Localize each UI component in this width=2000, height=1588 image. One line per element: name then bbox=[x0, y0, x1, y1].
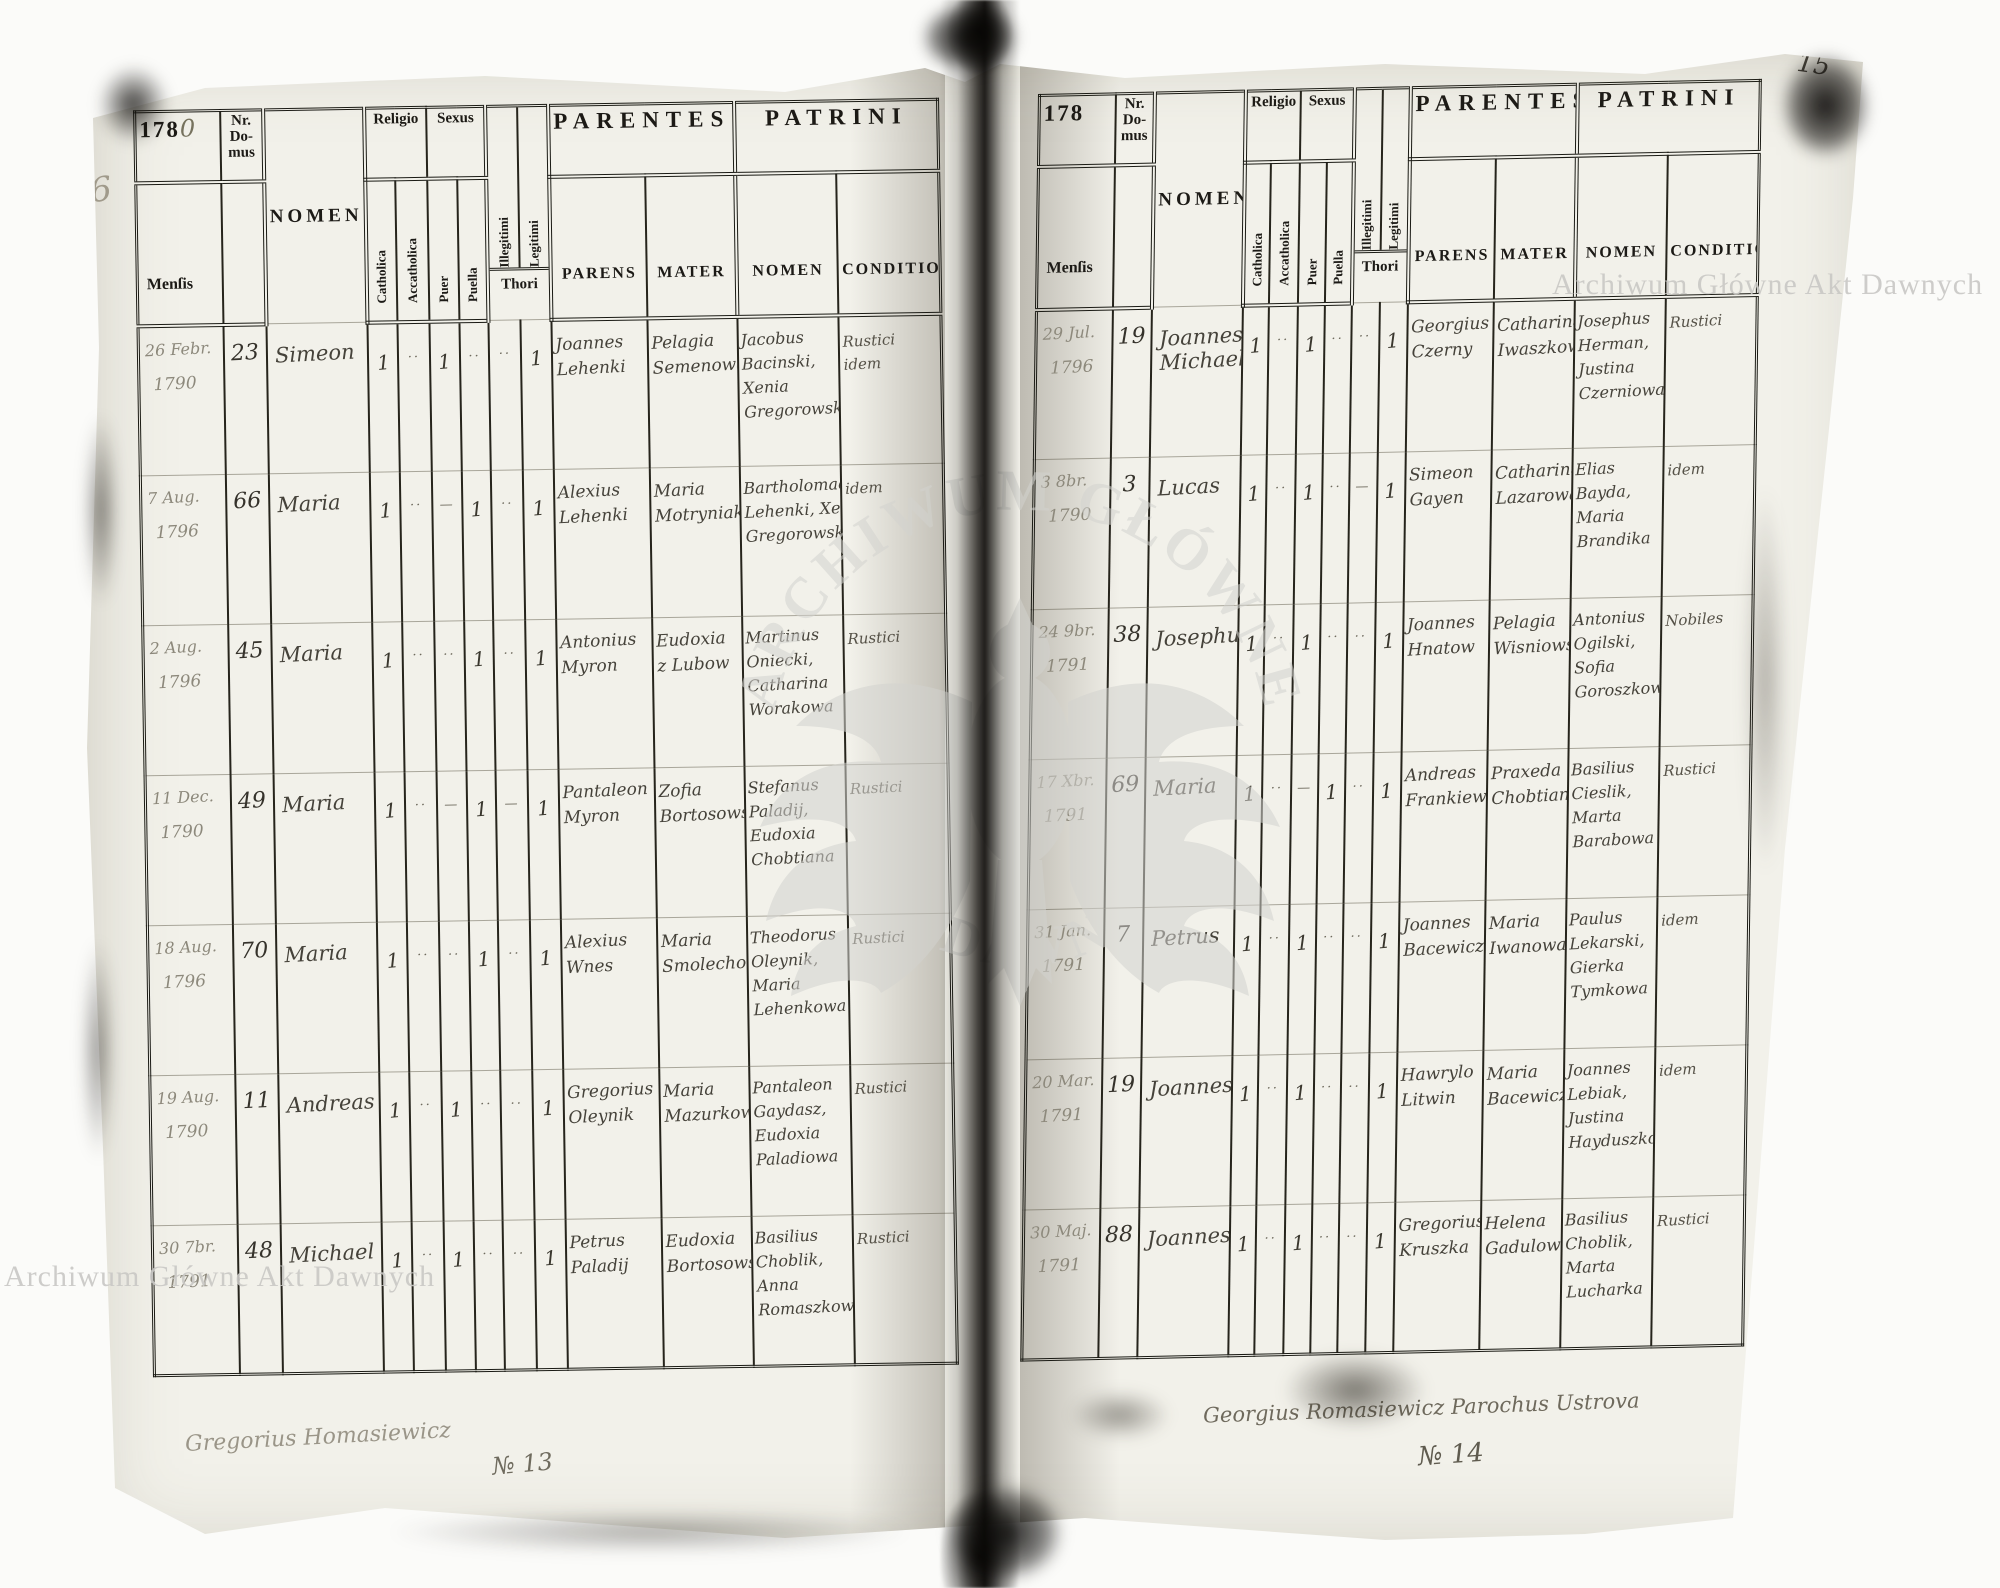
cell-godparents: Josephus Herman, Justina Czerniowa bbox=[1573, 296, 1666, 448]
illegitimi-label: Illegitimi bbox=[1359, 100, 1377, 250]
puer-mark: 1 bbox=[1291, 1230, 1305, 1255]
puer-mark: 1 bbox=[452, 1247, 467, 1272]
entry-child-name: Maria bbox=[279, 640, 343, 667]
legitimi-mark: 1 bbox=[1382, 628, 1396, 653]
entry-month-day: 18 Aug. bbox=[154, 936, 218, 958]
entry-month-day: 30 7br. bbox=[159, 1236, 217, 1258]
cell-father: Joannes Bacewicz bbox=[1397, 900, 1486, 1052]
entry-child-name: Andreas bbox=[286, 1089, 375, 1117]
entry-father: Gregorius Kruszka bbox=[1398, 1209, 1481, 1263]
illegitimi-mark: ·· bbox=[499, 347, 511, 362]
cell-godparents: Antonius Ogilski, Sofia Goroszkowa bbox=[1569, 597, 1662, 749]
cell-puella-mark: 1 bbox=[469, 920, 501, 1070]
cell-legitimi-mark: 1 bbox=[522, 469, 556, 619]
register-row: 29 Jul. 1796 19 Joannes Michael 1 ·· 1 ·… bbox=[1034, 294, 1757, 459]
cell-mensis: 7 Aug. 1796 bbox=[140, 475, 227, 626]
entry-father: Alexius Wnes bbox=[564, 927, 655, 981]
catholica-mark: 1 bbox=[376, 350, 391, 375]
worn-corner-top-left bbox=[86, 52, 181, 157]
cell-mother: Maria Iwanowa bbox=[1484, 899, 1567, 1051]
cell-nr-domus-cont bbox=[1113, 164, 1154, 308]
illegitimi-half: Illegitimi bbox=[1354, 90, 1381, 251]
puella-mark: 1 bbox=[474, 797, 489, 822]
puer-mark: — bbox=[444, 797, 459, 812]
cell-accatholica-mark: ·· bbox=[404, 771, 438, 921]
accatholica-label: Accatholica bbox=[403, 187, 421, 303]
cell-accatholica-header: Accatholica bbox=[395, 179, 429, 322]
cell-catholica-header: Catholica bbox=[365, 179, 397, 322]
cell-catholica-mark: 1 bbox=[379, 1072, 411, 1222]
accatholica-mark: ·· bbox=[408, 349, 420, 364]
thori-columns: Illegitimi Legitimi bbox=[487, 107, 548, 268]
cell-father: Gregorius Oleynik bbox=[563, 1068, 662, 1219]
cell-legitimi-mark: 1 bbox=[525, 619, 559, 769]
cell-child-name: Maria bbox=[271, 622, 375, 774]
accatholica-mark: ·· bbox=[1267, 1081, 1279, 1096]
entry-month-day: 26 Febr. bbox=[144, 338, 211, 360]
cell-father: Hawrylo Litwin bbox=[1395, 1050, 1484, 1202]
cell-mother: Praxeda Chobtiana bbox=[1486, 749, 1569, 901]
cell-legitimi-mark: 1 bbox=[1375, 452, 1405, 603]
cell-house-number: 45 bbox=[228, 624, 274, 775]
cell-accatholica-mark: ·· bbox=[1255, 1205, 1286, 1356]
cell-catholica-mark: 1 bbox=[377, 922, 409, 1072]
cell-house-number: 19 bbox=[1100, 1058, 1141, 1209]
cell-godparents: Basilius Choblik, Marta Lucharka bbox=[1560, 1197, 1653, 1349]
cell-child-name: Joannes bbox=[1137, 1206, 1230, 1358]
cell-godparents: Pantaleon Gaydasz, Eudoxia Paladiowa bbox=[749, 1065, 853, 1217]
entry-mother: Maria Mazurkowa bbox=[663, 1075, 752, 1129]
cell-mensis: 19 Aug. 1790 bbox=[150, 1074, 237, 1225]
cell-godparents: Elias Bayda, Maria Brandika bbox=[1571, 446, 1664, 598]
legitimi-mark: 1 bbox=[529, 346, 544, 371]
cell-puer-mark: — bbox=[432, 471, 464, 621]
catholica-mark: 1 bbox=[385, 948, 400, 973]
cell-conditio-header: CONDITIO bbox=[837, 171, 941, 315]
entry-house-number: 19 bbox=[1118, 323, 1147, 350]
cell-condition: Rustici bbox=[1664, 294, 1758, 446]
entry-father: Andreas Frankiewicz bbox=[1404, 758, 1487, 813]
cell-catholica-mark: 1 bbox=[368, 322, 400, 472]
cell-legitimi-mark: 1 bbox=[1367, 1052, 1397, 1203]
puella-mark: ·· bbox=[482, 1247, 494, 1262]
cell-mensis: 2 Aug. 1796 bbox=[143, 624, 230, 775]
cell-house-number: 23 bbox=[223, 324, 269, 475]
cell-puella-mark: 1 bbox=[464, 620, 496, 770]
archive-watermark-bottom-left: Archiwum Główne Akt Dawnych bbox=[4, 1260, 435, 1294]
cell-illegitimi-mark: — bbox=[1347, 452, 1377, 603]
cell-puella-mark: 1 bbox=[461, 470, 493, 620]
cell-nr-domus-cont bbox=[221, 181, 267, 324]
legitimi-label: Legitimi bbox=[1386, 99, 1404, 249]
illegitimi-mark: ·· bbox=[1353, 779, 1365, 794]
cell-legitimi-mark: 1 bbox=[530, 919, 564, 1069]
entry-mother: Eudoxia Bortosowska bbox=[665, 1225, 754, 1280]
entry-godparents: Joannes Lebiak, Justina Hayduszkowa bbox=[1567, 1053, 1656, 1155]
cell-accatholica-mark: ·· bbox=[407, 921, 441, 1071]
cell-puer-mark: 1 bbox=[429, 321, 461, 471]
entry-father: Antonius Myron bbox=[559, 627, 650, 681]
puella-mark: 1 bbox=[470, 497, 485, 522]
entry-child-name: Simeon bbox=[274, 340, 355, 368]
catholica-mark: 1 bbox=[1248, 332, 1262, 357]
thori-columns: Illegitimi Legitimi bbox=[1354, 89, 1408, 250]
catholica-mark: 1 bbox=[378, 498, 393, 523]
legitimi-mark: 1 bbox=[1376, 1078, 1390, 1103]
cell-catholica-mark: 1 bbox=[1241, 305, 1270, 456]
catholica-mark: 1 bbox=[380, 648, 395, 673]
cell-godparents: Basilius Choblik, Anna Romaszkowa bbox=[752, 1215, 856, 1367]
cell-father: Pantaleon Myron bbox=[558, 768, 657, 919]
entry-month-day: 30 Maj. bbox=[1030, 1220, 1092, 1242]
cell-puella-mark: ·· bbox=[473, 1220, 505, 1370]
cell-illegitimi-mark: ·· bbox=[1337, 1203, 1367, 1354]
cell-nomen-header: NOMEN bbox=[1152, 91, 1246, 307]
cell-mater-header: MATER bbox=[646, 174, 738, 318]
ink-smudge-bottom-center bbox=[1050, 1380, 1190, 1450]
entry-father: Joannes Bacewicz bbox=[1402, 909, 1484, 963]
cell-father: Antonius Myron bbox=[556, 618, 655, 769]
entry-year: 1791 bbox=[1040, 1104, 1098, 1127]
entry-condition: idem bbox=[1667, 457, 1705, 482]
cell-mother: Catharina Lazarowa bbox=[1490, 448, 1573, 600]
register-row: 30 7br. 1791 48 Michael 1 ·· 1 ·· ·· 1 P… bbox=[152, 1213, 957, 1376]
entry-mother: Helena Gadulowa bbox=[1485, 1208, 1563, 1262]
cell-illegitimi-mark: ·· bbox=[501, 1070, 535, 1220]
entry-child-name: Maria bbox=[277, 490, 341, 517]
legitimi-mark: 1 bbox=[538, 946, 553, 971]
cell-legitimi-mark: 1 bbox=[1377, 302, 1407, 453]
entry-father: Petrus Paladij bbox=[569, 1227, 660, 1281]
cell-mensis: 18 Aug. 1796 bbox=[147, 924, 234, 1075]
cell-nr-domus-header: Nr. Do- mus bbox=[220, 110, 264, 182]
cell-house-number: 88 bbox=[1098, 1208, 1139, 1359]
page-edge-shadow-right bbox=[1735, 420, 1795, 940]
cell-mother: Eudoxia Bortosowska bbox=[662, 1216, 754, 1367]
cell-patrini-header: PATRINI bbox=[734, 99, 938, 174]
accatholica-mark: ·· bbox=[410, 498, 422, 513]
register-number-left: № 13 bbox=[491, 1447, 554, 1480]
cell-parentes-header: PARENTES bbox=[548, 102, 735, 176]
cell-condition: idem bbox=[1655, 895, 1749, 1047]
catholica-label: Catholica bbox=[373, 187, 391, 303]
entry-godparents: Antonius Ogilski, Sofia Goroszkowa bbox=[1573, 603, 1662, 704]
illegitimi-half: Illegitimi bbox=[487, 107, 518, 267]
illegitimi-mark: ·· bbox=[503, 646, 515, 661]
cell-father: Gregorius Kruszka bbox=[1393, 1200, 1482, 1352]
cell-mensis: 26 Febr. 1790 bbox=[138, 325, 225, 476]
cell-child-name: Maria bbox=[276, 922, 380, 1074]
puer-mark: ·· bbox=[443, 647, 455, 662]
thori-wrap: Illegitimi Legitimi Thori bbox=[1353, 89, 1408, 302]
cell-puella-mark: ·· bbox=[1310, 1203, 1339, 1354]
cell-puer-mark: ·· bbox=[434, 621, 466, 771]
cell-catholica-mark: 1 bbox=[382, 1222, 414, 1372]
puer-mark: 1 bbox=[449, 1097, 464, 1122]
register-row: 30 Maj. 1791 88 Joannes 1 ·· 1 ·· ·· 1 G… bbox=[1022, 1195, 1745, 1360]
illegitimi-mark: — bbox=[504, 796, 519, 811]
entry-mother: Catharina Iwaszkowa bbox=[1497, 308, 1575, 363]
archive-watermark-top-right: Archiwum Główne Akt Dawnych bbox=[1552, 268, 1983, 302]
cell-patrini-header: PATRINI bbox=[1577, 80, 1760, 155]
cell-father: Alexius Wnes bbox=[561, 918, 660, 1069]
entry-year: 1796 bbox=[155, 520, 223, 543]
puella-mark: ·· bbox=[1319, 1230, 1331, 1245]
cell-father: Andreas Frankiewicz bbox=[1399, 750, 1488, 902]
cell-child-name: Simeon bbox=[266, 322, 370, 474]
entry-condition: Rustici bbox=[1663, 757, 1716, 782]
entry-house-number: 49 bbox=[238, 788, 267, 814]
illegitimi-mark: ·· bbox=[1359, 329, 1371, 344]
entry-godparents: Jacobus Bacinski, Xenia Gregorowska bbox=[740, 323, 841, 424]
cell-father: Georgius Czerny bbox=[1406, 300, 1495, 452]
entry-year: 1796 bbox=[158, 670, 226, 693]
cell-legitimi-mark: 1 bbox=[1369, 902, 1399, 1053]
cell-illegitimi-mark: ·· bbox=[1339, 1053, 1369, 1204]
year-printed: 178 bbox=[1044, 100, 1085, 126]
accatholica-mark: ·· bbox=[1264, 1231, 1276, 1246]
puella-mark: ·· bbox=[468, 348, 480, 363]
entry-month-day: 19 Aug. bbox=[156, 1086, 220, 1108]
catholica-mark: 1 bbox=[1238, 1081, 1252, 1106]
priest-signature-left: Gregorius Homasiewicz bbox=[185, 1418, 452, 1457]
worn-edge-left-upper bbox=[78, 380, 124, 640]
illegitimi-mark: ·· bbox=[1346, 1230, 1358, 1245]
entry-child-name: Joannes Michael bbox=[1159, 322, 1243, 375]
cell-catholica-mark: 1 bbox=[1228, 1205, 1257, 1356]
legitimi-mark: 1 bbox=[541, 1096, 556, 1121]
cell-catholica-header: Catholica bbox=[1243, 162, 1272, 305]
register-row: 19 Aug. 1790 11 Andreas 1 ·· 1 ·· ·· 1 G… bbox=[150, 1063, 955, 1226]
puella-mark: ·· bbox=[1321, 1080, 1333, 1095]
cell-child-name: Michael bbox=[281, 1222, 385, 1374]
cell-father: Alexius Lehenki bbox=[554, 468, 653, 619]
cell-puer-header: Puer bbox=[427, 178, 459, 321]
entry-mother: Praxeda Chobtiana bbox=[1491, 757, 1569, 811]
entry-month-day: 7 Aug. bbox=[147, 487, 200, 509]
illegitimi-mark: ·· bbox=[508, 946, 520, 961]
puella-mark: ·· bbox=[480, 1097, 492, 1112]
legitimi-mark: 1 bbox=[1386, 328, 1400, 353]
cell-mother: Helena Gadulowa bbox=[1479, 1199, 1562, 1351]
bottom-edge-shadow bbox=[300, 1502, 1000, 1562]
catholica-label: Catholica bbox=[1249, 170, 1267, 286]
cell-catholica-mark: 1 bbox=[370, 472, 402, 622]
cell-accatholica-mark: ·· bbox=[402, 621, 436, 771]
cell-puella-mark: 1 bbox=[466, 770, 498, 920]
legitimi-mark: 1 bbox=[536, 796, 551, 821]
register-number-right: № 14 bbox=[1417, 1438, 1485, 1473]
illegitimi-label: Illegitimi bbox=[494, 117, 512, 267]
entry-mother: Catharina Lazarowa bbox=[1495, 457, 1573, 511]
cell-condition: idem bbox=[1653, 1045, 1747, 1197]
cell-puella-mark: ·· bbox=[471, 1070, 503, 1220]
cell-legitimi-mark: 1 bbox=[1373, 602, 1403, 753]
cell-father: Simeon Gayen bbox=[1403, 450, 1492, 602]
entry-mother: Maria Bacewiczowa bbox=[1487, 1056, 1565, 1112]
legitimi-mark: 1 bbox=[534, 646, 549, 671]
header-row-groups: 1780 Nr. Do- mus NOMEN Religio Sexus Ill… bbox=[135, 99, 939, 183]
cell-mother: Catharina Iwaszkowa bbox=[1492, 298, 1575, 450]
entry-month-day: 11 Dec. bbox=[151, 786, 214, 808]
cell-puer-mark: 1 bbox=[441, 1071, 473, 1221]
entry-year: 1790 bbox=[165, 1120, 233, 1143]
catholica-mark: 1 bbox=[1236, 1231, 1250, 1256]
puer-mark: — bbox=[440, 497, 455, 512]
cell-religio-header: Religio bbox=[1245, 90, 1301, 163]
cell-parens-header: PARENS bbox=[549, 175, 648, 319]
cell-child-name: Joannes Michael bbox=[1150, 305, 1243, 457]
cell-godparents: Basilius Cieslik, Marta Barabowa bbox=[1567, 747, 1660, 899]
accatholica-mark: ·· bbox=[412, 648, 424, 663]
entry-godparents: Paulus Lekarski, Gierka Tymkowa bbox=[1569, 904, 1654, 1005]
illegitimi-mark: ·· bbox=[1348, 1079, 1360, 1094]
cell-puer-mark: 1 bbox=[444, 1221, 476, 1371]
cell-father: Joannes Hnatow bbox=[1401, 600, 1490, 752]
puella-label: Puella bbox=[1330, 168, 1348, 284]
cell-mother: Pelagia Wisniowska bbox=[1488, 598, 1571, 750]
cell-puer-mark: ·· bbox=[439, 921, 471, 1071]
entry-year: 1791 bbox=[1037, 1254, 1095, 1277]
entry-year: 1790 bbox=[153, 371, 221, 394]
cell-illegitimi-mark: ·· bbox=[498, 920, 532, 1070]
ink-blot-top-right-corner bbox=[1768, 38, 1883, 173]
puer-mark: 1 bbox=[1304, 331, 1318, 356]
cell-catholica-mark: 1 bbox=[372, 622, 404, 772]
entry-mother: Pelagia Wisniowska bbox=[1493, 607, 1571, 662]
cell-parentes-header: PARENTES bbox=[1410, 84, 1578, 159]
cell-house-number: 66 bbox=[225, 474, 271, 625]
cell-mensis: 20 Mar. 1791 bbox=[1024, 1058, 1103, 1210]
cell-illegitimi-mark: ·· bbox=[1343, 753, 1373, 904]
thori-wrap: Illegitimi Legitimi Thori bbox=[487, 107, 549, 320]
entry-condition: Rustici bbox=[1657, 1207, 1710, 1232]
cell-sexus-header: Sexus bbox=[426, 106, 487, 178]
cell-thori-header: Illegitimi Legitimi Thori bbox=[1351, 88, 1410, 303]
entry-father: Simeon Gayen bbox=[1409, 459, 1489, 513]
illegitimi-mark: ·· bbox=[513, 1246, 525, 1261]
accatholica-label: Accatholica bbox=[1276, 169, 1294, 285]
entry-house-number: 23 bbox=[231, 339, 260, 365]
cell-mother: Maria Mazurkowa bbox=[660, 1066, 752, 1217]
cell-puer-mark: — bbox=[436, 771, 468, 921]
cell-child-name: Maria bbox=[274, 772, 378, 924]
cell-puer-header: Puer bbox=[1298, 161, 1327, 304]
cell-house-number: 48 bbox=[237, 1224, 283, 1375]
puella-mark: ·· bbox=[1331, 331, 1343, 346]
cell-father: Joannes Lehenki bbox=[551, 318, 650, 469]
accatholica-mark: ·· bbox=[417, 948, 429, 963]
cell-godparents: Joannes Lebiak, Justina Hayduszkowa bbox=[1562, 1047, 1655, 1199]
entry-father: Joannes Hnatow bbox=[1406, 609, 1486, 663]
cell-father: Petrus Paladij bbox=[566, 1218, 665, 1369]
cell-catholica-mark: 1 bbox=[375, 772, 407, 922]
cell-mensis: 30 Maj. 1791 bbox=[1022, 1208, 1101, 1360]
entry-condition: Rustici bbox=[1669, 308, 1722, 333]
cell-puer-mark: 1 bbox=[1296, 304, 1325, 455]
cell-illegitimi-mark: ·· bbox=[1349, 302, 1379, 453]
entry-house-number: 11 bbox=[242, 1088, 271, 1114]
cell-legitimi-mark: 1 bbox=[1365, 1202, 1395, 1353]
entry-godparents: Elias Bayda, Maria Brandika bbox=[1575, 454, 1660, 555]
cell-nomen-header: NOMEN bbox=[263, 108, 368, 324]
archival-scan-background: ARCHIWUM GŁÓWNE AKT DAWNYCH bbox=[0, 0, 2000, 1588]
illegitimi-mark: ·· bbox=[1355, 629, 1367, 644]
entry-year: 1796 bbox=[1050, 355, 1108, 378]
cell-house-number: 19 bbox=[1111, 307, 1152, 458]
cell-child-name: Andreas bbox=[278, 1072, 382, 1224]
entry-father: Georgius Czerny bbox=[1411, 311, 1491, 365]
accatholica-mark: ·· bbox=[419, 1098, 431, 1113]
entry-house-number: 45 bbox=[235, 638, 264, 664]
cell-house-number: 70 bbox=[233, 924, 279, 1075]
cell-illegitimi-mark: ·· bbox=[503, 1220, 537, 1370]
entry-godparents: Basilius Choblik, Marta Lucharka bbox=[1565, 1204, 1650, 1305]
puer-mark: ·· bbox=[448, 947, 460, 962]
cell-thori-header: Illegitimi Legitimi Thori bbox=[485, 105, 551, 320]
entry-child-name: Maria bbox=[284, 940, 348, 967]
cell-mensis: 11 Dec. 1790 bbox=[145, 774, 232, 925]
cell-illegitimi-mark: ·· bbox=[489, 320, 523, 470]
entry-month-day: 2 Aug. bbox=[149, 636, 202, 658]
cell-accatholica-mark: ·· bbox=[409, 1071, 443, 1221]
puer-label: Puer bbox=[434, 186, 452, 302]
cell-parens-header: PARENS bbox=[1408, 157, 1496, 302]
entry-father: Alexius Lehenki bbox=[557, 477, 648, 531]
agad-eagle-watermark: ARCHIWUM GŁÓWNE AKT DAWNYCH bbox=[700, 440, 1340, 1080]
pencil-mark-left-margin: 6 bbox=[88, 169, 114, 211]
cell-illegitimi-mark: ·· bbox=[491, 470, 525, 620]
cell-puella-header: Puella bbox=[1325, 160, 1354, 303]
entry-house-number: 88 bbox=[1105, 1222, 1134, 1249]
illegitimi-mark: ·· bbox=[1350, 929, 1362, 944]
cell-house-number: 11 bbox=[235, 1074, 281, 1225]
cell-puella-mark: ·· bbox=[1323, 303, 1352, 454]
cell-accatholica-mark: ·· bbox=[397, 321, 431, 471]
cell-sexus-header: Sexus bbox=[1300, 89, 1354, 161]
cell-puer-mark: 1 bbox=[1283, 1204, 1312, 1355]
entry-condition: Nobiles bbox=[1665, 607, 1723, 633]
entry-condition: idem bbox=[1659, 1058, 1697, 1083]
entry-child-name: Joannes bbox=[1147, 1223, 1230, 1252]
illegitimi-mark: ·· bbox=[501, 496, 513, 511]
entry-condition: idem bbox=[1661, 908, 1699, 933]
thori-label: Thori bbox=[1353, 249, 1406, 302]
entry-father: Pantaleon Myron bbox=[562, 777, 653, 831]
cell-child-name: Maria bbox=[269, 472, 373, 624]
entry-mother: Pelagia Semenowa bbox=[651, 327, 740, 381]
entry-year: 1796 bbox=[162, 970, 230, 993]
entry-house-number: 66 bbox=[233, 488, 262, 514]
cell-puella-mark: ·· bbox=[459, 320, 491, 470]
cell-accatholica-mark: ·· bbox=[411, 1221, 445, 1371]
cell-mensis: 30 7br. 1791 bbox=[152, 1224, 239, 1375]
cell-mensis-header: Menſis bbox=[136, 182, 223, 326]
puer-label: Puer bbox=[1304, 169, 1322, 285]
puer-mark: 1 bbox=[1293, 1080, 1307, 1105]
entry-father: Gregorius Oleynik bbox=[567, 1077, 658, 1131]
entry-godparents: Basilius Choblik, Anna Romaszkowa bbox=[754, 1221, 855, 1322]
cell-accatholica-header: Accatholica bbox=[1269, 161, 1300, 304]
legitimi-mark: 1 bbox=[543, 1245, 558, 1270]
year-handwritten: 0 bbox=[180, 114, 198, 142]
entry-godparents: Josephus Herman, Justina Czerniowa bbox=[1577, 305, 1665, 406]
cell-puella-header: Puella bbox=[457, 178, 489, 321]
cell-patrini-nomen-header: NOMEN bbox=[735, 172, 838, 316]
cell-illegitimi-mark: ·· bbox=[494, 620, 528, 770]
cell-legitimi-mark: 1 bbox=[527, 769, 561, 919]
illegitimi-mark: ·· bbox=[511, 1096, 523, 1111]
